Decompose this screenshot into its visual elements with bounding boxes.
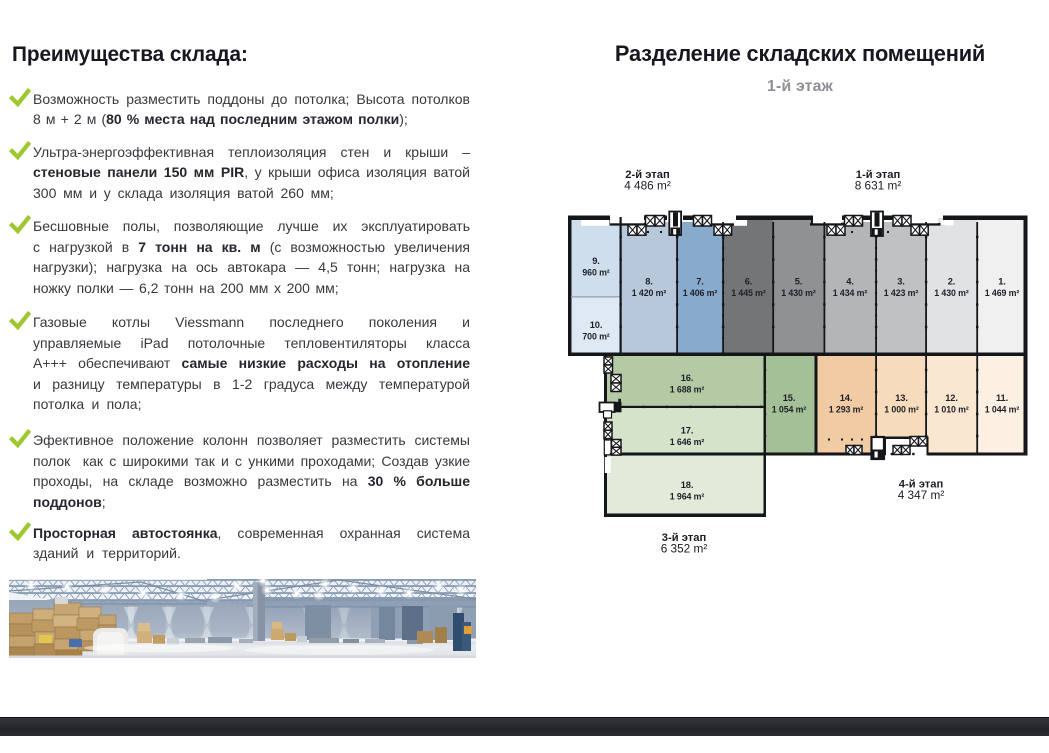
- svg-text:4 347 m²: 4 347 m²: [898, 488, 945, 502]
- svg-text:1 044 m²: 1 044 m²: [985, 405, 1020, 415]
- svg-text:4 486 m²: 4 486 m²: [624, 179, 671, 193]
- svg-text:9.: 9.: [592, 256, 600, 266]
- svg-text:1 430 m²: 1 430 m²: [781, 288, 816, 298]
- svg-text:1 423 m²: 1 423 m²: [884, 288, 919, 298]
- svg-text:6 352 m²: 6 352 m²: [661, 542, 708, 556]
- svg-text:1 964 m²: 1 964 m²: [670, 492, 705, 502]
- svg-text:16.: 16.: [681, 373, 694, 383]
- svg-text:15.: 15.: [783, 393, 796, 403]
- svg-text:1 010 m²: 1 010 m²: [934, 405, 969, 415]
- svg-text:1 646 m²: 1 646 m²: [670, 437, 705, 447]
- svg-text:7.: 7.: [696, 277, 704, 287]
- svg-text:1 293 m²: 1 293 m²: [829, 405, 864, 415]
- svg-text:18.: 18.: [681, 480, 694, 490]
- svg-text:17.: 17.: [681, 426, 694, 436]
- svg-text:1 000 m²: 1 000 m²: [884, 405, 919, 415]
- svg-text:14.: 14.: [840, 393, 853, 403]
- svg-text:960 m²: 960 m²: [582, 268, 609, 278]
- svg-text:1 688 m²: 1 688 m²: [670, 385, 705, 395]
- svg-text:4.: 4.: [846, 277, 854, 287]
- svg-text:1 469 m²: 1 469 m²: [985, 288, 1020, 298]
- svg-text:11.: 11.: [996, 393, 1008, 403]
- svg-text:700 m²: 700 m²: [582, 332, 609, 342]
- svg-text:6.: 6.: [745, 277, 753, 287]
- svg-text:1.: 1.: [998, 277, 1006, 287]
- svg-text:1 430 m²: 1 430 m²: [934, 288, 969, 298]
- svg-text:5.: 5.: [795, 277, 803, 287]
- svg-text:8 631 m²: 8 631 m²: [855, 179, 902, 193]
- svg-text:1 434 m²: 1 434 m²: [833, 288, 868, 298]
- svg-text:1 420 m²: 1 420 m²: [632, 288, 667, 298]
- svg-text:13.: 13.: [895, 393, 908, 403]
- svg-text:12.: 12.: [945, 393, 958, 403]
- svg-text:10.: 10.: [590, 320, 603, 330]
- svg-text:8.: 8.: [645, 277, 653, 287]
- svg-text:1 445 m²: 1 445 m²: [731, 288, 766, 298]
- svg-text:1 054 m²: 1 054 m²: [772, 405, 807, 415]
- svg-text:2.: 2.: [948, 277, 956, 287]
- svg-text:3.: 3.: [897, 277, 905, 287]
- svg-text:1 406 m²: 1 406 m²: [683, 288, 718, 298]
